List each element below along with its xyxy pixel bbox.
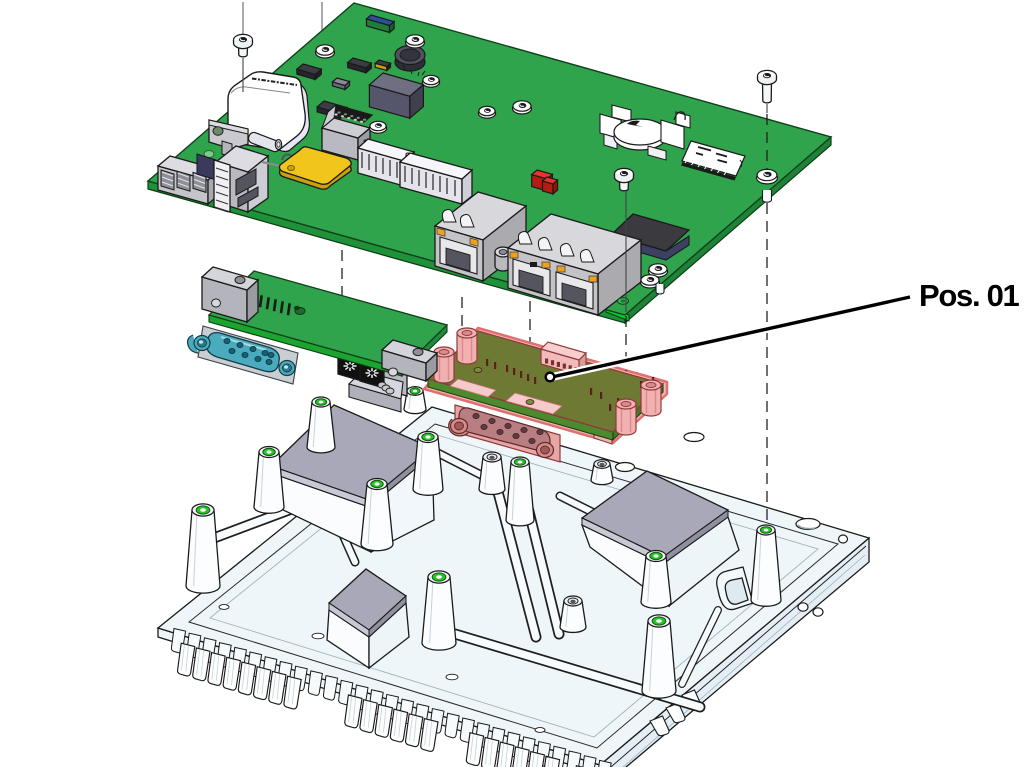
- svg-text:Pos. 01: Pos. 01: [919, 278, 1020, 313]
